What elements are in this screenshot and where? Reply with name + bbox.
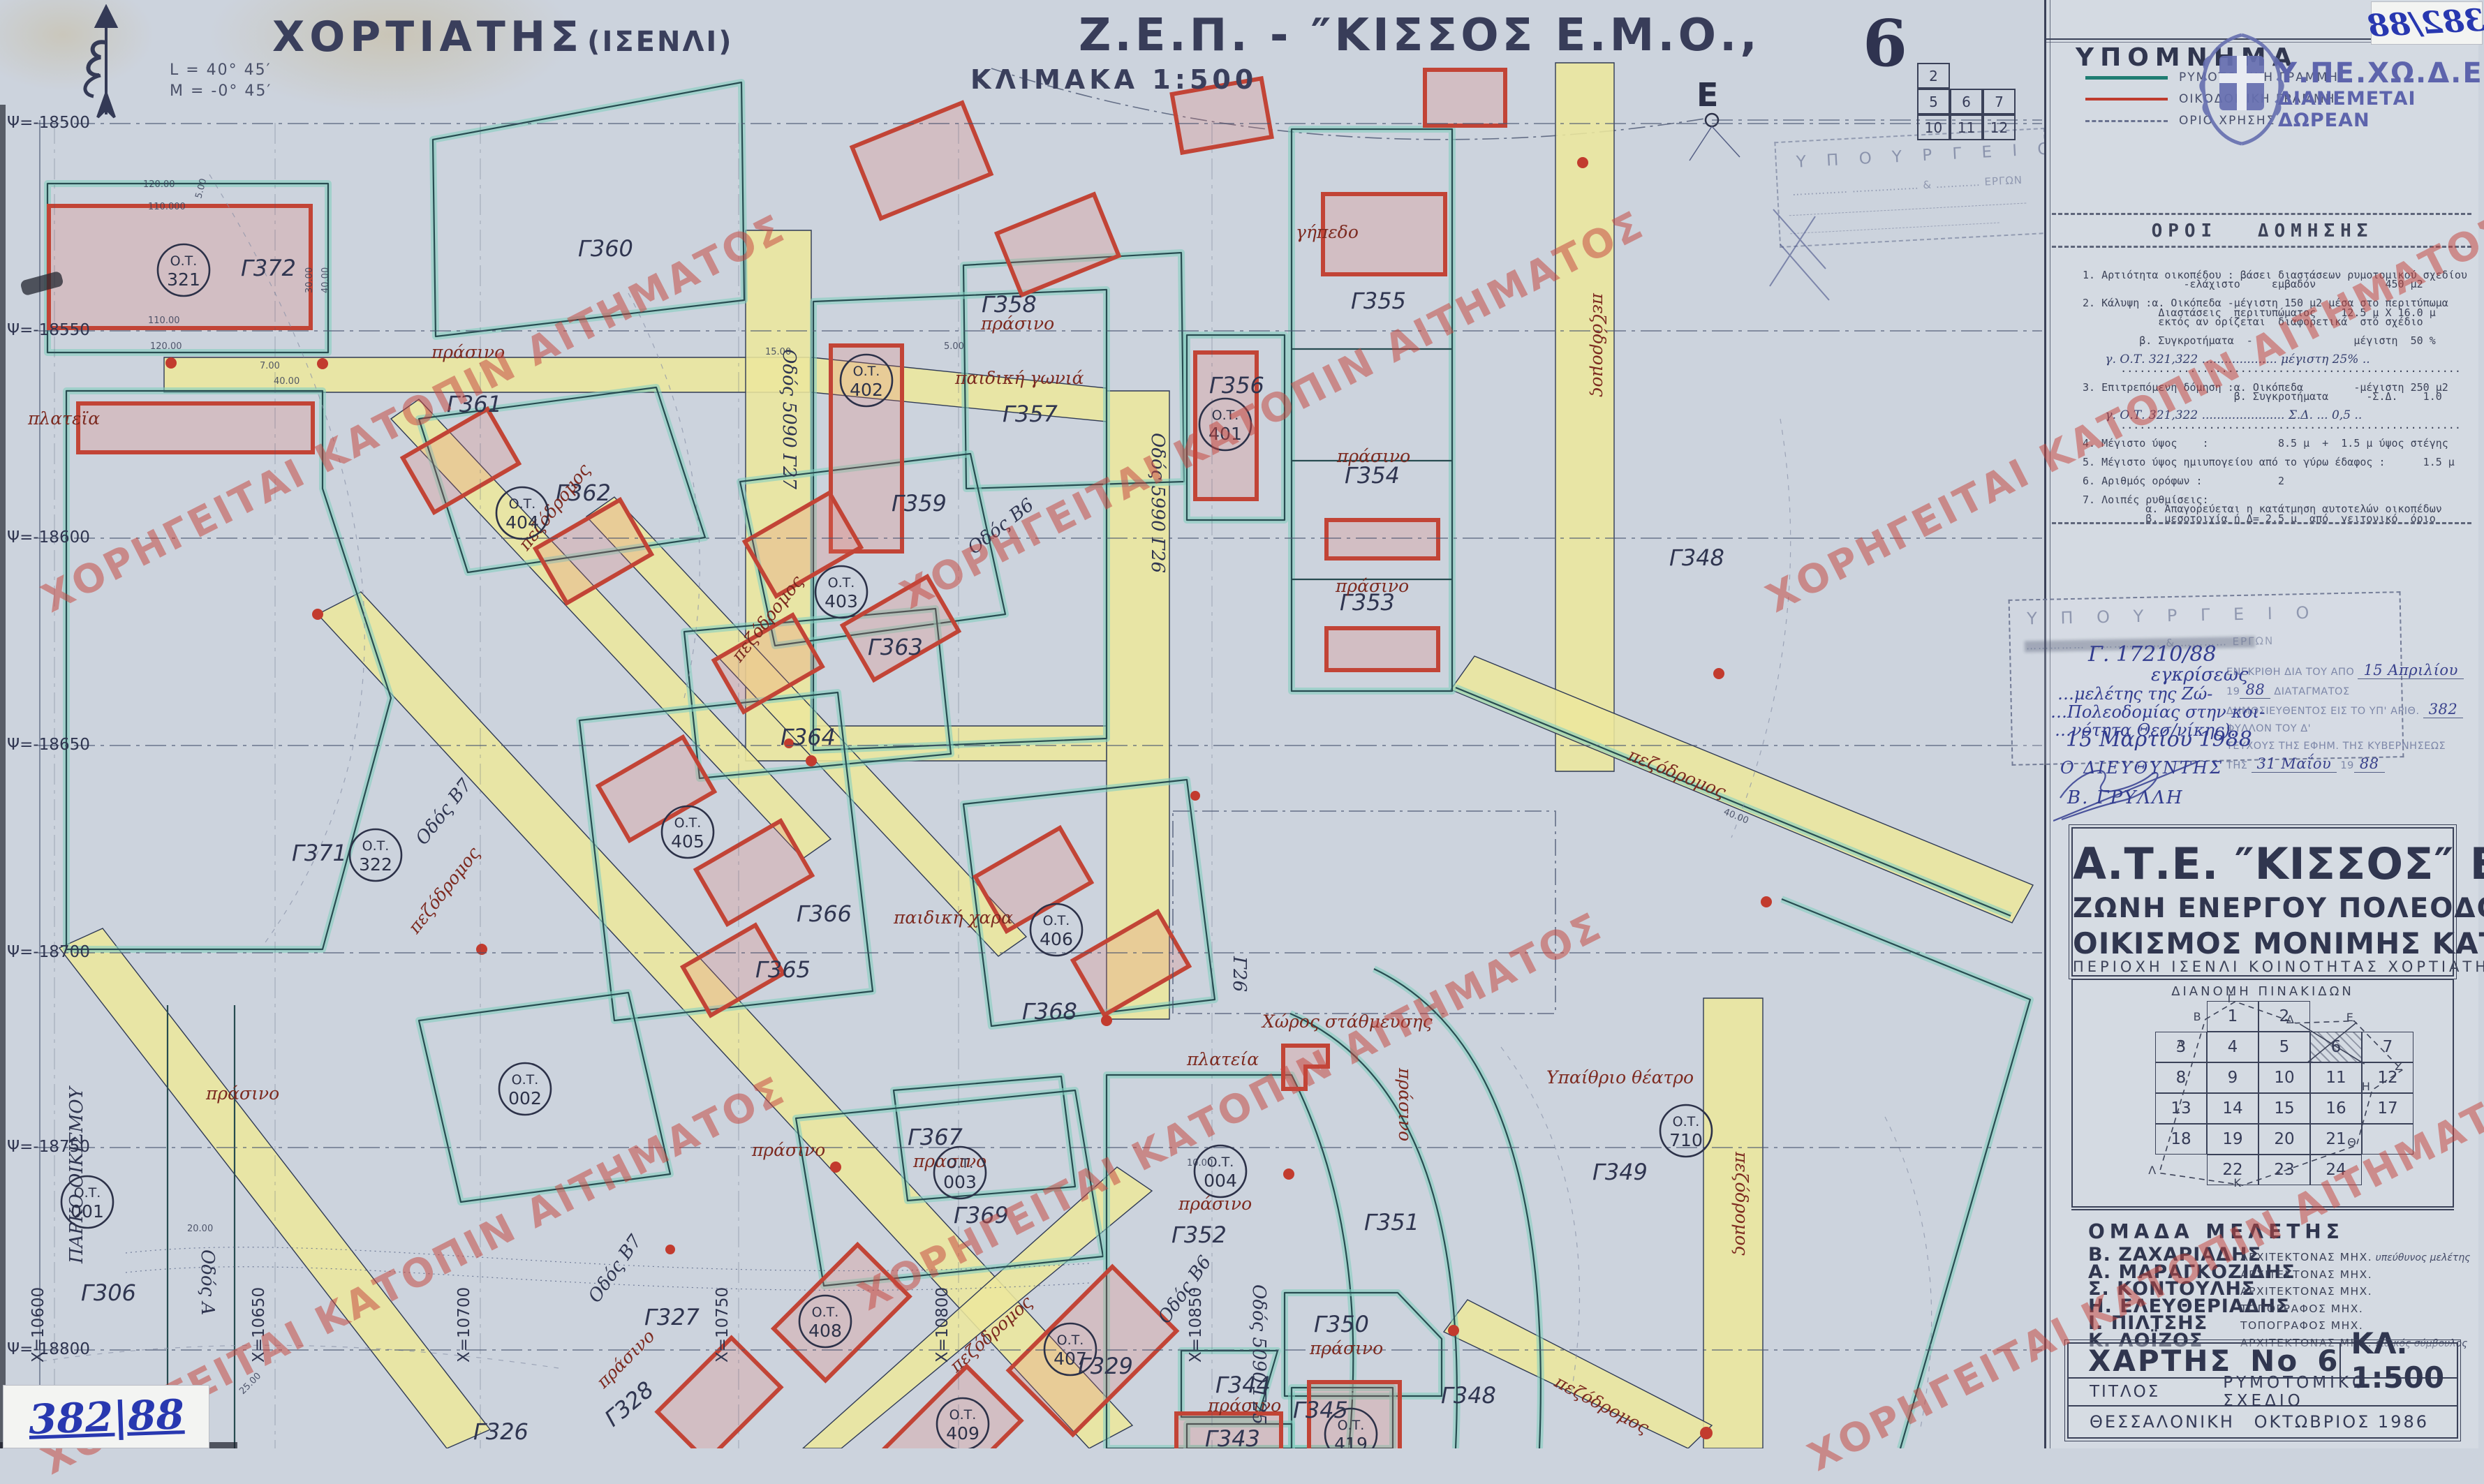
grid-label-y: Ψ=-18550 bbox=[7, 321, 90, 339]
sheet-number: 6 bbox=[1863, 6, 1907, 81]
map-label: ΧΑΡΤΗΣ bbox=[2088, 1344, 2232, 1378]
map-label-Γ306: Γ306 bbox=[81, 1279, 136, 1306]
zone-title: ΖΩΝΗ ΕΝΕΡΓΟΥ ΠΟΛΕΟΔΟΜΙΑΣ bbox=[2073, 893, 2453, 924]
ot-number: 321 bbox=[167, 269, 200, 290]
map-label-πρσινο: πράσινο bbox=[1207, 1395, 1281, 1416]
map-label-Γ368: Γ368 bbox=[1022, 998, 1077, 1025]
red-line-swatch bbox=[2085, 98, 2168, 101]
ot-number: 710 bbox=[1669, 1130, 1703, 1150]
diagram-boundary bbox=[2073, 980, 2455, 1209]
map-number: 6 bbox=[2317, 1344, 2339, 1378]
sheet-boundary-letter-Θ: Θ bbox=[2347, 1136, 2356, 1149]
map-label-ΟδςΒ7: Οδός Β7 bbox=[412, 775, 476, 849]
map-label-πρσινο: πράσινο bbox=[1336, 446, 1410, 466]
map-label-Γ348: Γ348 bbox=[1669, 544, 1724, 571]
map-label-πρσινο: πράσινο bbox=[1335, 576, 1409, 596]
sheet-boundary-letter-Δ: Δ bbox=[2286, 1013, 2294, 1026]
title-paren: (ΙΣΕΝΛΙ) bbox=[587, 26, 733, 58]
ot-block-marker-322: Ο.Τ.322 bbox=[350, 829, 401, 881]
ot-prefix: Ο.Τ. bbox=[509, 496, 536, 512]
map-label-Γ365: Γ365 bbox=[755, 956, 811, 983]
mini-index-cell-6: 6 bbox=[1950, 89, 1983, 114]
ot-prefix: Ο.Τ. bbox=[1207, 1155, 1234, 1170]
ot-number: 322 bbox=[359, 854, 392, 875]
grid-label-x: Χ=10600 bbox=[29, 1287, 47, 1363]
mini-index-cell-12: 12 bbox=[1983, 114, 2016, 140]
ot-prefix: Ο.Τ. bbox=[1043, 913, 1070, 928]
map-label-Γ372: Γ372 bbox=[241, 255, 296, 281]
stamp-line2: …………… ……………… & ………… ΕΡΓΩΝ bbox=[1792, 174, 2023, 198]
map-label-πλατεα: πλατεία bbox=[1186, 1049, 1259, 1069]
ot-number: 407 bbox=[1054, 1349, 1087, 1369]
map-label-Γ352: Γ352 bbox=[1171, 1222, 1227, 1248]
regulation-line: ........................................… bbox=[2083, 421, 2471, 430]
ot-block-marker-406: Ο.Τ.406 bbox=[1030, 904, 1082, 956]
grid-label-x: Χ=10700 bbox=[455, 1287, 473, 1363]
scanned-urban-plan-sheet: { "header": { "title_main": "ΧΟΡΤΙΑΤΗΣ",… bbox=[0, 0, 2484, 1448]
map-label-3000: 30.00 bbox=[304, 267, 315, 293]
map-label-πρσινο: πράσινο bbox=[592, 1326, 659, 1393]
approval-typed-text: ΔΙΑΤΑΓΜΑΤΟΣ bbox=[2270, 686, 2349, 697]
ot-block-marker-403: Ο.Τ.403 bbox=[815, 566, 867, 618]
regulation-line: εκτός αν ορίζεται διαφορετικά στό σχέδιο bbox=[2083, 318, 2471, 327]
map-label-Γ360: Γ360 bbox=[578, 235, 633, 262]
grid-label-y: Ψ=-18650 bbox=[7, 736, 90, 754]
map-label-πεζδρομος: πεζόδρομος bbox=[1731, 1151, 1752, 1256]
map-label-1500: 15.00 bbox=[765, 347, 791, 357]
dashed-separator bbox=[2052, 246, 2471, 248]
mini-index-cell-10: 10 bbox=[1917, 114, 1950, 140]
map-label-Γ355: Γ355 bbox=[1351, 288, 1406, 314]
grid-label-x: Χ=10650 bbox=[250, 1287, 268, 1363]
ot-number: 001 bbox=[71, 1201, 104, 1222]
reference-sticker-front: 382|88 bbox=[3, 1385, 209, 1448]
map-label-Γ326: Γ326 bbox=[473, 1418, 528, 1445]
grid-label-y: Ψ=-18700 bbox=[7, 943, 90, 961]
map-label-4000: 40.00 bbox=[274, 376, 300, 387]
ot-number: 002 bbox=[508, 1088, 542, 1108]
sheet-boundary-letter-Β: Β bbox=[2194, 1010, 2201, 1023]
ot-number: 401 bbox=[1208, 424, 1242, 444]
map-label-Γ363: Γ363 bbox=[868, 634, 923, 660]
sheet-boundary-letter-Λ: Λ bbox=[2148, 1164, 2156, 1177]
regulation-line: ........................................… bbox=[2083, 364, 2471, 373]
stamp-hand-line: εγκρίσεως bbox=[2151, 665, 2248, 685]
map-label-γπεδο: γήπεδο bbox=[1296, 222, 1359, 242]
approval-handwritten-entry: 88 bbox=[2354, 755, 2385, 773]
ot-number: 409 bbox=[946, 1423, 979, 1444]
map-label-12000: 120.00 bbox=[143, 179, 175, 190]
ot-prefix: Ο.Τ. bbox=[512, 1072, 539, 1088]
ot-prefix: Ο.Τ. bbox=[828, 575, 855, 591]
map-title: ΧΟΡΤΙΑΤΗΣ (ΙΣΕΝΛΙ) bbox=[272, 13, 734, 61]
footer-city: ΘΕΣΣΑΛΟΝΙΚΗ bbox=[2069, 1412, 2235, 1432]
reference-number-mirrored: 382/88 bbox=[2367, 2, 2484, 44]
sheet-boundary-letter-Κ: Κ bbox=[2233, 1176, 2241, 1189]
map-label-Γ367: Γ367 bbox=[908, 1124, 963, 1150]
regulation-line: β. Συγκροτήματα -Σ.Δ. 1.0 bbox=[2083, 392, 2471, 401]
stamp-hand-line: Γ. 17210/88 bbox=[2088, 642, 2217, 667]
map-label-ΟδςΒ7: Οδός Β7 bbox=[584, 1231, 646, 1307]
sheet-boundary-letter-Η: Η bbox=[2362, 1080, 2370, 1093]
team-title: ΟΜΑΔΑ ΜΕΛΕΤΗΣ bbox=[2088, 1220, 2344, 1243]
approval-line: ΕΝΕΚΡΙΘΗ ΔΙΑ ΤΟΥ ΑΠΟ 15 Απριλίου 1988 ΔΙ… bbox=[2226, 662, 2471, 701]
map-label-ΠΑΡΚΟΟΙΚΙΣΜΟΥ: ΠΑΡΚΟ ΟΙΚΙΣΜΟΥ bbox=[66, 1085, 87, 1264]
footer-date: ΟΚΤΩΒΡΙΟΣ 1986 bbox=[2254, 1412, 2457, 1432]
ot-block-marker-004: Ο.Τ.004 bbox=[1195, 1145, 1246, 1197]
map-label-ΟδςΒ6: Οδός Β6 bbox=[964, 494, 1038, 558]
map-label-Γ364: Γ364 bbox=[781, 724, 836, 750]
approval-typed-text: ΤΕΥΧΟΥΣ ΤΗΣ ΕΦΗΜ. ΤΗΣ ΚΥΒΕΡΝΗΣΕΩΣ bbox=[2226, 741, 2446, 752]
approval-typed-text: 19 bbox=[2226, 686, 2240, 697]
declination-m: M = -0° 45′ bbox=[170, 82, 272, 100]
mini-sheet-index: 2567101112 bbox=[1917, 63, 2018, 143]
study-team-section: ΟΜΑΔΑ ΜΕΛΕΤΗΣ Β. ΖΑΧΑΡΙΑΔΗΣΑΡΧΙΤΕΚΤΟΝΑΣ … bbox=[2071, 1209, 2454, 1343]
ot-prefix: Ο.Τ. bbox=[947, 1156, 974, 1171]
ot-number: 403 bbox=[825, 591, 858, 611]
sheet-boundary-letter-Γ: Γ bbox=[2228, 992, 2234, 1005]
team-member-row: Η. ΕΛΕΥΘΕΡΙΑΔΗΣΤΟΠΟΓΡΑΦΟΣ ΜΗΧ. bbox=[2088, 1296, 2363, 1314]
grid-label-x: Χ=10750 bbox=[714, 1287, 732, 1363]
approval-line: ΤΗΣ 31 Μαΐου 1988 bbox=[2226, 755, 2471, 775]
team-member-row: Σ. ΚΟΝΤΟΥΛΗΣΑΡΧΙΤΕΚΤΟΝΑΣ ΜΗΧ. bbox=[2088, 1278, 2372, 1297]
team-member-row: Α. ΜΑΡΑΓΚΟΖΙΔΗΣΑΡΧΙΤΕΚΤΟΝΑΣ ΜΗΧ. bbox=[2088, 1261, 2372, 1280]
ot-prefix: Ο.Τ. bbox=[853, 364, 880, 379]
ot-prefix: Ο.Τ. bbox=[1673, 1114, 1700, 1129]
ot-number: 419 bbox=[1334, 1434, 1368, 1448]
ot-number: 408 bbox=[808, 1321, 842, 1341]
map-label-Γ357: Γ357 bbox=[1003, 401, 1058, 427]
map-label-πρσινο: πράσινο bbox=[431, 342, 505, 362]
map-label-πρσινο: πράσινο bbox=[1395, 1067, 1415, 1141]
north-arrow-icon bbox=[70, 4, 136, 130]
stamp-signer: Β. ΓΡΥΛΛΗ bbox=[2067, 787, 2184, 808]
org-title: Α.Τ.Ε. ″ΚΙΣΣΟΣ″ Ε.Μ.Ο. bbox=[2073, 838, 2453, 889]
title-row: ΤΙΤΛΟΣ ΡΥΜΟΤΟΜΙΚΟ ΣΧΕΔΙΟ bbox=[2069, 1379, 2457, 1407]
footer-scale: ΚΛ. 1:500 bbox=[2339, 1344, 2457, 1377]
approval-handwritten-entry: 31 Μαΐου bbox=[2252, 755, 2337, 773]
map-label-Γ369: Γ369 bbox=[954, 1202, 1009, 1229]
ot-number: 406 bbox=[1040, 929, 1073, 949]
map-label-Γ356: Γ356 bbox=[1209, 372, 1264, 399]
ot-prefix: Ο.Τ. bbox=[1338, 1418, 1365, 1433]
area-title: ΠΕΡΙΟΧΗ ΙΣΕΝΛΙ ΚΟΙΝΟΤΗΤΑΣ ΧΟΡΤΙΑΤΗ bbox=[2073, 958, 2453, 975]
grid-label-y: Ψ=-18600 bbox=[7, 528, 90, 547]
map-label-Γ351: Γ351 bbox=[1364, 1209, 1419, 1236]
ot-prefix: Ο.Τ. bbox=[362, 838, 390, 854]
reference-number: 382|88 bbox=[27, 1390, 184, 1444]
map-label-700: 7.00 bbox=[260, 361, 280, 371]
sheet-boundary-letter-Ε: Ε bbox=[2346, 1011, 2353, 1024]
title-value: ΡΥΜΟΤΟΜΙΚΟ ΣΧΕΔΙΟ bbox=[2160, 1374, 2457, 1410]
ot-prefix: Ο.Τ. bbox=[74, 1185, 101, 1201]
team-member-row: Ι. ΠΙΛΤΣΗΣΤΟΠΟΓΡΑΦΟΣ ΜΗΧ. bbox=[2088, 1312, 2363, 1331]
approval-handwritten-entry: 382 bbox=[2423, 701, 2464, 718]
regulation-line: -ελάχιστο εμβαδόν 450 μ2 bbox=[2083, 280, 2471, 289]
mini-index-cell-2: 2 bbox=[1917, 63, 1950, 89]
ot-number: 003 bbox=[943, 1172, 977, 1192]
title-main: ΧΟΡΤΙΑΤΗΣ bbox=[272, 13, 584, 61]
dashed-separator bbox=[2052, 213, 2471, 215]
title-panel: ΥΠΟΜΝΗΜΑ Υ.ΠΕ.ΧΩ.Δ.Ε. ΔΙΑΝΕΜΕΤΑΙ ΔΩΡΕΑΝ … bbox=[2044, 0, 2478, 1448]
map-label-παιδικγωνι: παιδική γωνιά bbox=[954, 368, 1084, 388]
ot-prefix: Ο.Τ. bbox=[170, 253, 198, 269]
approval-line: ΤΕΥΧΟΥΣ ΤΗΣ ΕΦΗΜ. ΤΗΣ ΚΥΒΕΡΝΗΣΕΩΣ bbox=[2226, 738, 2471, 755]
map-label-Υπαθριοθατρο: Υπαίθριο θέατρο bbox=[1546, 1067, 1694, 1088]
ot-number: 404 bbox=[505, 512, 539, 533]
sheet-boundary-letter-Α: Α bbox=[2177, 1038, 2184, 1051]
approval-handwritten-entry: 15 Απριλίου bbox=[2358, 662, 2463, 679]
grid-label-x: Χ=10800 bbox=[933, 1287, 952, 1363]
map-label-πρσινο: πράσινο bbox=[751, 1140, 825, 1160]
map-label-2500: 25.00 bbox=[237, 1371, 263, 1397]
map-label-πεζδρομος: πεζόδρομος bbox=[1589, 292, 1609, 397]
dash-line-swatch bbox=[2085, 120, 2168, 122]
map-label-Οδς5090Γ25: Οδός 5090 Γ25 bbox=[1248, 1284, 1269, 1425]
reference-sticker-back: 382/88 bbox=[2371, 1, 2483, 45]
regulation-line: 4. Μέγιστο ύψος : 8.5 μ + 1.5 μ ύψος στέ… bbox=[2083, 439, 2471, 448]
teal-line-swatch bbox=[2085, 76, 2168, 80]
approval-typed-text: ΤΗΣ bbox=[2226, 760, 2252, 771]
map-label-πρσινο: πράσινο bbox=[980, 313, 1054, 334]
map-label-Γ348: Γ348 bbox=[1441, 1382, 1496, 1409]
no-label: Νο bbox=[2250, 1344, 2299, 1378]
scan-edge-mark bbox=[0, 105, 6, 1448]
ot-prefix: Ο.Τ. bbox=[1057, 1333, 1084, 1348]
map-label-12000: 120.00 bbox=[150, 341, 182, 352]
map-label-Οδς5990Γ26: Οδός 5990 Γ26 bbox=[1147, 433, 1168, 573]
regulation-line: 5. Μέγιστο ύψος ημιυπογείου από το γύρω … bbox=[2083, 458, 2471, 467]
map-label-500: 5.00 bbox=[944, 341, 964, 352]
map-label-Γ26: Γ26 bbox=[1229, 956, 1250, 992]
stamp-role: Ο ΔΙΕΥΘΥΝΤΗΣ bbox=[2060, 758, 2224, 778]
ot-prefix: Ο.Τ. bbox=[1212, 408, 1239, 423]
regulation-line: 6. Αριθμός ορόφων : 2 bbox=[2083, 477, 2471, 486]
ot-number: 405 bbox=[671, 831, 704, 852]
map-label-Γ327: Γ327 bbox=[644, 1304, 700, 1330]
mini-index-cell-5: 5 bbox=[1917, 89, 1950, 114]
map-label-2000: 20.00 bbox=[187, 1224, 213, 1234]
stamp-hand-line: …Πολεοδομίας στην κοι- bbox=[2050, 702, 2265, 722]
building-regulations: 1. Αρτιότητα οικοπέδου : βάσει διαστάσεω… bbox=[2083, 271, 2471, 524]
grid-label-y: Ψ=-18800 bbox=[7, 1340, 90, 1358]
map-label-παιδικχαρα: παιδική χαρα bbox=[893, 907, 1013, 928]
mini-index-cell-11: 11 bbox=[1950, 114, 1983, 140]
scale-label: ΚΛΙΜΑΚΑ 1:500 bbox=[970, 64, 1257, 95]
team-member-row: Β. ΖΑΧΑΡΙΑΔΗΣΑΡΧΙΤΕΚΤΟΝΑΣ ΜΗΧ. υπεύθυνος… bbox=[2088, 1244, 2470, 1263]
pen-scribble bbox=[1759, 202, 1843, 307]
declination-l: L = 40° 45′ bbox=[170, 61, 272, 79]
city-date-row: ΘΕΣΣΑΛΟΝΙΚΗ ΟΚΤΩΒΡΙΟΣ 1986 bbox=[2069, 1407, 2457, 1437]
settlement-title: ΟΙΚΙΣΜΟΣ ΜΟΝΙΜΗΣ ΚΑΤΟΙΚΙΑΣ bbox=[2073, 926, 2453, 960]
oroi-domisis-title: ΟΡΟΙ ΔΟΜΗΣΗΣ bbox=[2046, 221, 2478, 242]
ot-block-marker-002: Ο.Τ.002 bbox=[499, 1063, 551, 1115]
map-label-E: E bbox=[1696, 76, 1718, 114]
map-label-Γ371: Γ371 bbox=[292, 840, 347, 866]
ot-prefix: Ο.Τ. bbox=[812, 1305, 839, 1320]
ot-prefix: Ο.Τ. bbox=[674, 815, 702, 831]
free-distribution-stamp: ΔΙΑΝΕΜΕΤΑΙ ΔΩΡΕΑΝ bbox=[2278, 88, 2478, 131]
mini-index-cell-7: 7 bbox=[1983, 89, 2016, 114]
ot-block-marker-405: Ο.Τ.405 bbox=[662, 806, 714, 858]
map-label-ΟδςΑ: Οδός Α bbox=[197, 1249, 218, 1315]
footer-title-block: ΧΑΡΤΗΣ Νο 6 ΚΛ. 1:500 ΤΙΤΛΟΣ ΡΥΜΟΤΟΜΙΚΟ … bbox=[2067, 1342, 2458, 1439]
member-role-extra: υπεύθυνος μελέτης bbox=[2372, 1252, 2470, 1263]
map-label-11000: 110.00 bbox=[148, 316, 180, 326]
ot-number: 004 bbox=[1204, 1171, 1237, 1191]
map-title-right: Ζ.Ε.Π. - ″ΚΙΣΣΟΣ Ε.Μ.Ο., bbox=[1079, 10, 1761, 61]
ot-prefix: Ο.Τ. bbox=[949, 1407, 977, 1423]
map-label-Γ359: Γ359 bbox=[892, 490, 947, 517]
map-label-Γ349: Γ349 bbox=[1592, 1159, 1648, 1185]
map-label-Χροςστθμευσης: Χώρος στάθμευσης bbox=[1261, 1011, 1433, 1032]
project-title-block: Α.Τ.Ε. ″ΚΙΣΣΟΣ″ Ε.Μ.Ο. ΖΩΝΗ ΕΝΕΡΓΟΥ ΠΟΛΕ… bbox=[2071, 827, 2454, 977]
map-label-ΟδςΒ6: Οδός Β6 bbox=[1154, 1252, 1215, 1328]
map-label-πρσινο: πράσινο bbox=[205, 1083, 279, 1104]
map-label-Οδς5090Γ27: Οδός 5090 Γ27 bbox=[778, 349, 799, 489]
regulation-line: β. Συγκροτήματα - μέγιστη 50 % bbox=[2083, 336, 2471, 346]
sheet-boundary-letter-Ζ: Ζ bbox=[2395, 1060, 2402, 1073]
map-label-Γ343: Γ343 bbox=[1205, 1425, 1260, 1448]
map-label-4000: 40.00 bbox=[320, 267, 331, 293]
map-label-Γ366: Γ366 bbox=[797, 900, 852, 927]
map-label-Γ350: Γ350 bbox=[1314, 1311, 1369, 1337]
map-label-πλατεα: πλατεϊα bbox=[27, 408, 100, 429]
map-label-Γ361: Γ361 bbox=[447, 391, 502, 417]
stamp-date: 15 Μαρτίου 1988 bbox=[2066, 727, 2252, 752]
title-label: ΤΙΤΛΟΣ bbox=[2069, 1383, 2160, 1401]
approval-typed-text: 19 bbox=[2337, 760, 2354, 771]
dashed-separator bbox=[2052, 522, 2471, 524]
stamp-hand-line: …μελέτης της Ζώ- bbox=[2057, 684, 2212, 704]
map-label-110000: 110.000 bbox=[148, 202, 186, 212]
sheet-distribution-diagram: ΔΙΑΝΟΜΗ ΠΙΝΑΚΙΔΩΝ 1234567891011121314151… bbox=[2071, 979, 2454, 1208]
map-label-πρσινο: πράσινο bbox=[1309, 1338, 1383, 1358]
ypechode-stamp: Υ.ΠΕ.ΧΩ.Δ.Ε. bbox=[2277, 57, 2484, 89]
stamp-header: Υ Π Ο Υ Ρ Γ Ε Ι Ο bbox=[2027, 603, 2319, 629]
stamp-line1: Υ Π Ο Υ Ρ Γ Ε Ι Ο bbox=[1796, 140, 2058, 172]
ot-number: 402 bbox=[850, 380, 883, 400]
map-label-πεζδρομος: πεζόδρομος bbox=[404, 843, 484, 938]
